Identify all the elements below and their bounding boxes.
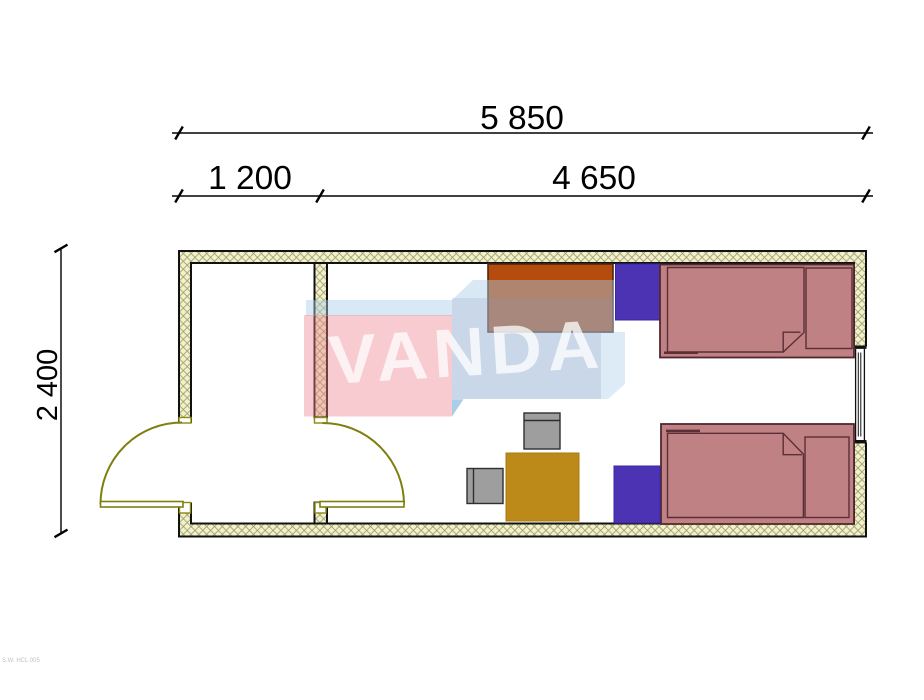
svg-text:1 200: 1 200: [208, 160, 292, 197]
svg-text:5 850: 5 850: [480, 100, 564, 137]
svg-text:4 650: 4 650: [552, 160, 636, 197]
svg-text:S.W. HCL 005: S.W. HCL 005: [2, 658, 40, 664]
svg-text:2 400: 2 400: [32, 349, 64, 422]
